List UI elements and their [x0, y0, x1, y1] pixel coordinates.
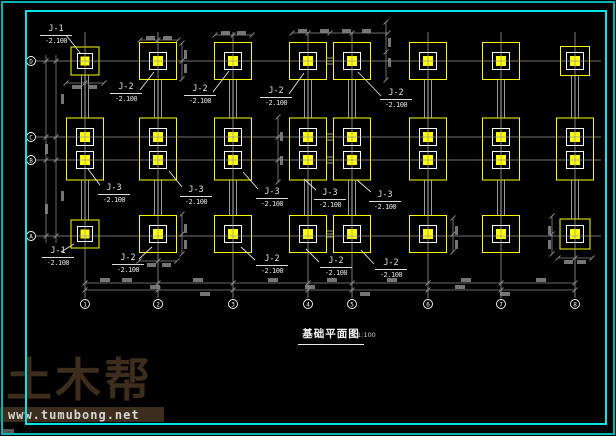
watermark-logo: 土木帮: [6, 354, 166, 406]
footing-label-elevation: -2.100: [380, 100, 412, 110]
footing-label-name: J-2: [112, 253, 144, 265]
footing-label-elevation: -2.100: [40, 36, 72, 46]
footing-label-elevation: -2.100: [260, 98, 292, 108]
footing-label-elevation: -2.100: [98, 195, 130, 205]
footing-label: J-2-2.100: [320, 256, 352, 278]
footing-label-name: J-2: [320, 256, 352, 268]
footing-label-name: J-2: [256, 254, 288, 266]
footing-label-elevation: -2.100: [256, 266, 288, 276]
footing-label: J-2-2.100: [112, 253, 144, 275]
footing-label: J-2-2.100: [375, 258, 407, 280]
cad-drawing-viewport: 12345678DCBA J-1-2.100J-2-2.100J-2-2.100…: [0, 0, 616, 436]
footing-label: J-3-2.100: [256, 187, 288, 209]
footing-label: J-2-2.100: [256, 254, 288, 276]
footing-label-elevation: -2.100: [180, 197, 212, 207]
footing-label-elevation: -2.100: [314, 200, 346, 210]
footing-label-elevation: -2.100: [184, 96, 216, 106]
footing-label-name: J-2: [110, 82, 142, 94]
footing-label: J-2-2.100: [380, 88, 412, 110]
footing-label-name: J-3: [256, 187, 288, 199]
footing-label-name: J-2: [260, 86, 292, 98]
footing-label-elevation: -2.100: [112, 265, 144, 275]
footing-label-elevation: -2.100: [369, 202, 401, 212]
footing-label-elevation: -2.100: [320, 268, 352, 278]
footing-label-elevation: -2.100: [42, 258, 74, 268]
footing-label-name: J-1: [42, 246, 74, 258]
footing-label-name: J-3: [180, 185, 212, 197]
footing-label: J-2-2.100: [184, 84, 216, 106]
footing-label: J-1-2.100: [42, 246, 74, 268]
footing-label-name: J-3: [98, 183, 130, 195]
footing-label: J-3-2.100: [180, 185, 212, 207]
footing-label: J-3-2.100: [314, 188, 346, 210]
footing-label-elevation: -2.100: [375, 270, 407, 280]
footing-label: J-2-2.100: [110, 82, 142, 104]
footing-label-name: J-3: [314, 188, 346, 200]
drawing-title: 基础平面图: [298, 326, 364, 345]
footing-label-name: J-2: [184, 84, 216, 96]
footing-label-name: J-2: [380, 88, 412, 100]
footing-label-name: J-2: [375, 258, 407, 270]
footing-label: J-3-2.100: [369, 190, 401, 212]
footing-label-elevation: -2.100: [256, 199, 288, 209]
watermark-url: www.tumubong.net: [8, 408, 140, 422]
footing-label-name: J-3: [369, 190, 401, 202]
title-block: 基础平面图: [296, 322, 366, 345]
footing-label: J-2-2.100: [260, 86, 292, 108]
corner-smudge: [2, 429, 14, 433]
footing-label: J-3-2.100: [98, 183, 130, 205]
drawing-scale: 1:100: [357, 331, 376, 339]
footing-label: J-1-2.100: [40, 24, 72, 46]
footing-label-elevation: -2.100: [110, 94, 142, 104]
footing-label-name: J-1: [40, 24, 72, 36]
